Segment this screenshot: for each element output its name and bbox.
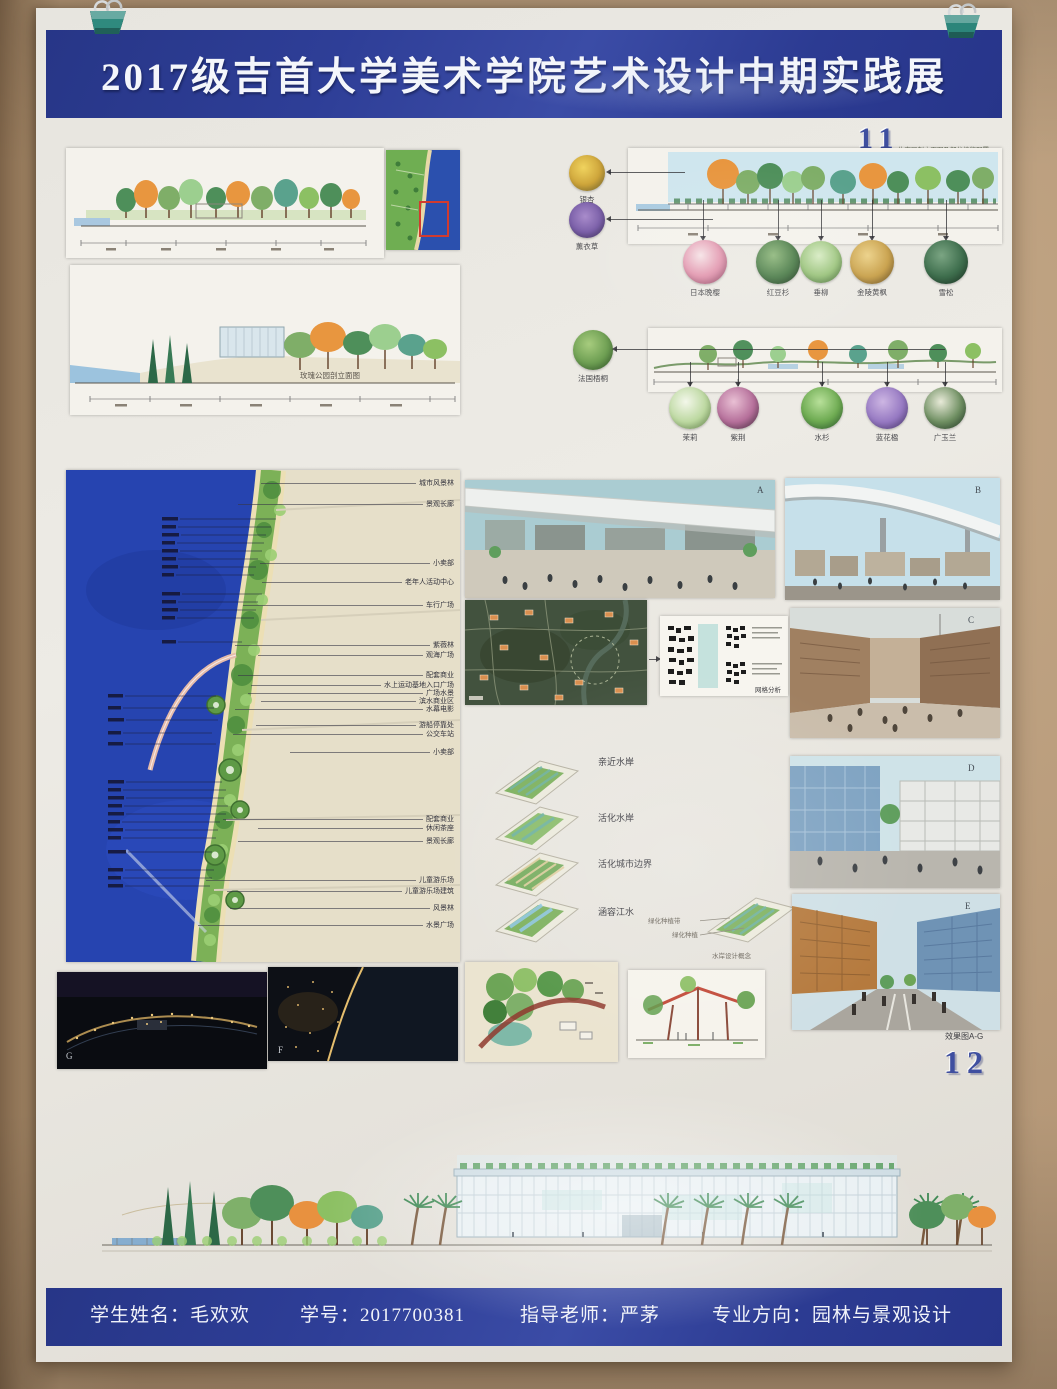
render-letter-g: G [66,1052,73,1061]
callout-line [615,349,945,350]
plan-label-row: 公交车站 [233,731,454,738]
plan-label-row: 风景林 [230,905,454,912]
night-render-g-image [57,972,267,1069]
major-value: 园林与景观设计 [812,1305,952,1326]
plan-label-row: 广场水景 [248,690,454,697]
plant-photo-golden-maple [850,240,894,284]
mini-caption: 水岸设计概念 [712,954,751,961]
render-letter-e: E [965,902,971,911]
plan-label-row: 休闲茶座 [258,825,454,832]
plant-photo-redbud [717,387,759,429]
plan-label-row: 观海广场 [258,652,454,659]
plan-label-row: 城市风景林 [261,480,454,487]
plan-label-row: 水景广场 [198,922,454,929]
plant-photo-lavender [569,202,605,238]
plan-label-row: 景观长廊 [238,838,454,845]
mini-note-1: 绿化种植带 [648,919,681,926]
callout-line [609,219,713,220]
callout-line [778,200,779,238]
photo-of-exhibition-poster: { "poster": { "title": "2017级吉首大学美术学院艺术设… [0,0,1057,1389]
night-render-f-image [268,967,458,1061]
callout-line [703,200,704,238]
mini-note-2: 绿化种植 [672,933,698,940]
footer-major: 专业方向：园林与景观设计 [712,1300,952,1327]
plan-label-row: 水上运动基地入口广场 [251,682,454,689]
page-number-12: 12 [944,1044,990,1081]
plant-photo-yew [756,240,800,284]
plan-label-row: 景观长廊 [238,501,454,508]
arrowhead-icon [606,216,611,222]
header-band: 2017级吉首大学美术学院艺术设计中期实践展 [46,30,1002,118]
plant-photo-plane-tree [573,330,613,370]
major-label: 专业方向： [712,1305,812,1326]
arrowhead-icon [606,169,611,175]
axon-diagram-4 [490,893,582,943]
plan-label-row: 游船停靠处 [256,722,454,729]
plan-label-row: 儿童游乐场建筑 [227,888,454,895]
plant-label: 法国梧桐 [578,375,608,383]
plant-photo-magnolia [924,387,966,429]
plan-label-row: 小卖部 [260,560,454,567]
callout-line [609,172,685,173]
plan-label-row: 儿童游乐场 [206,877,454,884]
plant-label: 雪松 [939,289,954,297]
plant-photo-jacaranda [866,387,908,429]
satellite-map-image [465,600,647,705]
axon-label-3: 活化城市边界 [598,860,652,869]
plant-photo-metasequoia [801,387,843,429]
renders-caption: 效果图A-G [945,1033,983,1041]
plant-photo-ginkgo [569,155,605,191]
axon-label-4: 涵容江水 [598,908,634,917]
student-name-value: 毛欢欢 [190,1305,250,1326]
plan-label-row: 小卖部 [290,749,454,756]
axon-diagram-2 [490,801,582,851]
section-drawing-1 [66,148,384,258]
plan-label-row: 老年人活动中心 [262,579,454,586]
render-a-image [465,480,775,598]
axon-diagram-3 [490,847,582,897]
render-b-image [785,478,1000,600]
grid-analysis-caption: 网格分析 [755,688,781,695]
plant-label: 红豆杉 [767,289,790,297]
callout-line [821,200,822,238]
render-d-image [790,756,1000,888]
render-letter-f: F [278,1046,283,1055]
render-letter-d: D [968,764,975,773]
render-c-image [790,608,1000,738]
plant-label: 广玉兰 [934,434,957,442]
teacher-value: 严茅 [620,1305,660,1326]
student-name-label: 学生姓名： [90,1305,190,1326]
footer-student-name: 学生姓名：毛欢欢 [90,1300,250,1327]
callout-line [946,200,947,238]
master-plan-labels: 城市风景林 景观长廊 小卖部 老年人活动中心 车行广场 紫薇林 观海广场 配套商… [66,470,460,962]
eco-section-drawing-2 [648,328,1002,392]
axon-label-1: 亲近水岸 [598,758,634,767]
poster-title: 2017级吉首大学美术学院艺术设计中期实践展 [101,46,947,102]
arrowhead-icon [612,346,617,352]
waterfront-mini-diagram [700,888,800,946]
plant-label: 紫荆 [731,434,746,442]
callout-line [872,200,873,238]
render-letter-c: C [968,616,974,625]
plant-label: 金陵黄枫 [857,289,887,297]
concept-sketch-image [628,970,765,1058]
binder-clip-left-icon [84,0,130,36]
plant-photo-jasmine [669,387,711,429]
plan-label-row: 配套商业 [238,672,454,679]
plan-label-row: 车行广场 [243,602,454,609]
plant-photo-cherry [683,240,727,284]
render-letter-b: B [975,486,981,495]
plant-label: 薰衣草 [576,243,599,251]
plant-label: 茉莉 [683,434,698,442]
footer-student-id: 学号：2017700381 [300,1300,465,1327]
plant-label: 水杉 [815,434,830,442]
footer-teacher: 指导老师：严茅 [520,1300,660,1327]
student-id-label: 学号： [300,1305,360,1326]
plant-label: 蓝花楹 [876,434,899,442]
plan-label-row: 配套商业 [223,816,454,823]
plant-photo-willow [800,241,842,283]
render-e-image [792,894,1000,1030]
render-letter-a: A [757,486,764,495]
figure-ground-panel [660,616,788,696]
plant-label: 日本晚樱 [690,289,720,297]
plant-photo-cedar [924,240,968,284]
plan-label-row: 紫薇林 [235,642,454,649]
axon-diagram-1 [490,755,582,805]
plan-label-row: 水幕电影 [235,706,454,713]
teacher-label: 指导老师： [520,1305,620,1326]
binder-clip-right-icon [938,2,984,40]
final-elevation-drawing [62,1095,1002,1270]
plan-label-row: 滨水商业区 [261,698,454,705]
student-id-value: 2017700381 [360,1305,465,1326]
axon-label-2: 活化水岸 [598,814,634,823]
location-map-inset [386,150,460,250]
rose-park-caption: 玫瑰公园剖立面图 [300,372,360,380]
plant-label: 垂柳 [814,289,829,297]
detail-plan-image [465,962,618,1062]
section-drawing-2 [70,265,460,415]
